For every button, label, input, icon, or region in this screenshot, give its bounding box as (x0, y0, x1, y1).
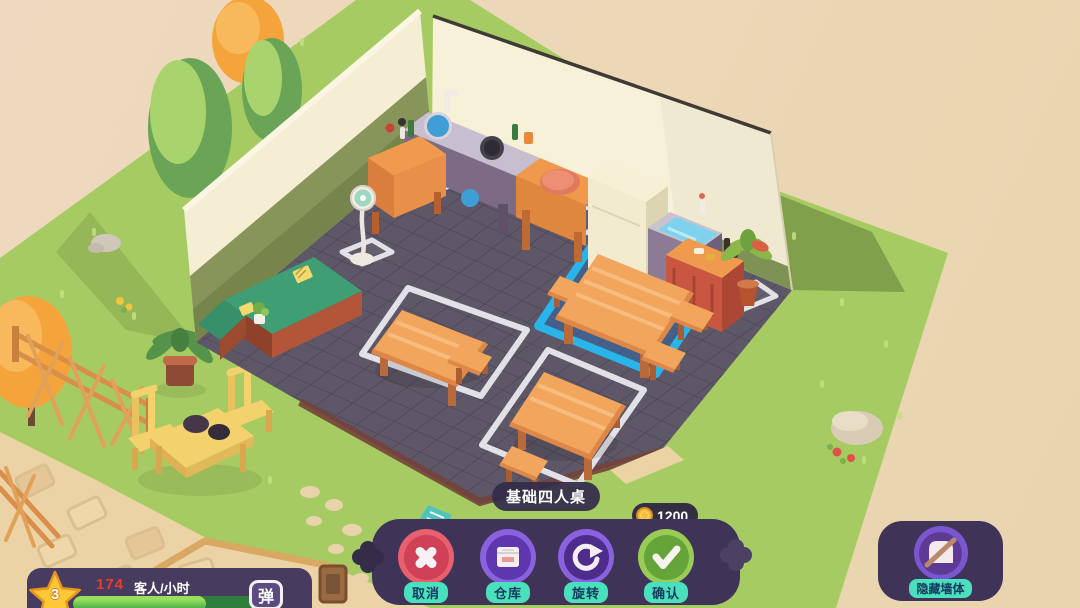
popup-side-button[interactable]: 弹 (249, 580, 283, 608)
confirm-button[interactable]: 确认 (634, 529, 698, 603)
clover-decoration-right (728, 547, 738, 557)
rate-value: 174 (96, 576, 124, 593)
check-icon (650, 541, 682, 573)
wood-crate (320, 566, 346, 602)
rotate-button[interactable]: 旋转 (554, 529, 618, 603)
stats-panel: 3 174 客人/小时 弹 (27, 568, 312, 608)
x-icon (411, 542, 441, 572)
warehouse-button-label: 仓库 (486, 582, 530, 603)
cancel-button[interactable]: 取消 (394, 529, 458, 603)
hide-walls-button[interactable]: 隐藏墙体 (878, 521, 1003, 601)
placement-toolbar: 取消 仓库 旋转 确认 (372, 519, 740, 605)
hidden-wall-icon (923, 536, 959, 570)
star-level-value: 3 (40, 586, 70, 603)
selection-tooltip: 基础四人桌 (492, 482, 600, 511)
warehouse-button[interactable]: 仓库 (476, 529, 540, 603)
clover-decoration-left (360, 549, 370, 559)
progress-fill (73, 596, 206, 608)
rotate-arrow-icon (569, 540, 603, 574)
game-screen: 基础四人桌 1200 取消 仓库 旋转 (0, 0, 1080, 608)
cancel-button-label: 取消 (404, 582, 448, 603)
confirm-button-label: 确认 (644, 582, 688, 603)
hide-walls-label: 隐藏墙体 (909, 579, 971, 598)
rate-unit: 客人/小时 (134, 578, 190, 597)
storage-box-icon (493, 542, 523, 572)
rotate-button-label: 旋转 (564, 582, 608, 603)
restaurant-scene (0, 0, 1080, 608)
progress-bar (73, 596, 263, 608)
